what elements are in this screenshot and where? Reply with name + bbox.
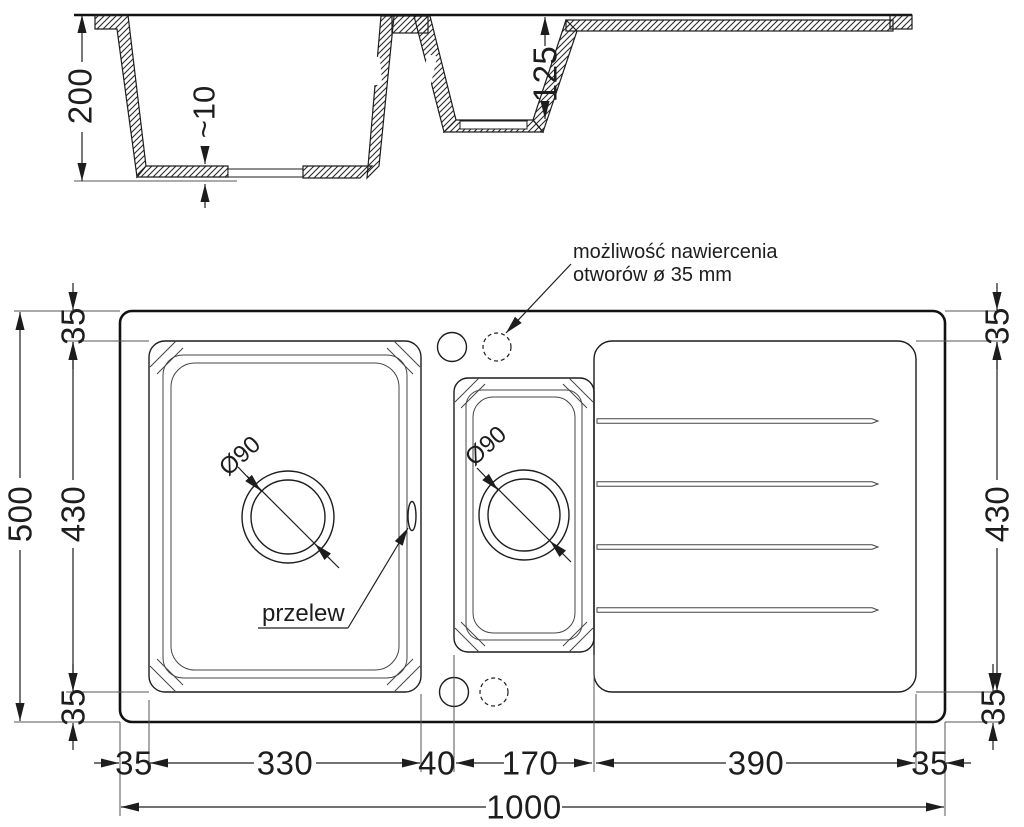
section-bowl1-right-wall (367, 16, 394, 178)
bowl2-drain-arrow-1 (477, 468, 498, 490)
section-bowl1-drain-recess (228, 169, 303, 177)
drill-note-line1: możliwość nawiercenia (573, 241, 778, 263)
overflow-label: przelew (262, 600, 345, 627)
section-bowl2-drain-recess (460, 121, 527, 129)
drainer-groove (597, 608, 878, 612)
dim-bowl-height-left: 430 (55, 486, 92, 543)
optional-hole-top (483, 333, 511, 361)
plan-view: Ø90 Ø90 (120, 311, 945, 722)
faucet-hole-top (438, 333, 467, 362)
dims-left: 500 430 35 35 (2, 283, 150, 750)
dims-right: 430 35 35 (916, 283, 1016, 750)
technical-drawing-sink: 200 ~10 125 (0, 0, 1024, 827)
section-drainer-end-rim (890, 15, 912, 29)
sink-outline (120, 311, 945, 722)
dim-overall-width: 1000 (486, 789, 561, 826)
section-bowl1-floor-right (303, 166, 372, 178)
dims-bottom: 35 330 40 170 390 35 1000 (94, 655, 971, 826)
dim-bottom-left-margin: 35 (115, 745, 153, 782)
drill-note-line2: otworów ø 35 mm (573, 264, 732, 286)
dim-bowl2-depth-label: 125 (527, 46, 564, 103)
dim-divider-width: 40 (418, 745, 456, 782)
dim-margin-bottom-left: 35 (55, 688, 92, 726)
drainer-groove (597, 482, 878, 486)
dim-margin-bottom-right: 35 (975, 688, 1012, 726)
drainer-groove (597, 419, 878, 423)
bowl2-drain-arrow-2 (550, 541, 571, 562)
section-bowl1-left-wall (95, 15, 146, 177)
bowl2-drain-diameter-label: Ø90 (460, 421, 512, 471)
sink-drawing-canvas: 200 ~10 125 (0, 0, 1024, 827)
overflow-note: przelew (258, 528, 408, 628)
drill-note: możliwość nawiercenia otworów ø 35 mm (506, 241, 778, 333)
dim-bowl-height-right: 430 (979, 486, 1016, 543)
dim-bottom-right-margin: 35 (911, 745, 949, 782)
bowl1-mid-edge (163, 355, 407, 678)
bowl2-drain-callout: Ø90 (460, 421, 571, 562)
dim-margin-top-left: 35 (55, 307, 92, 345)
section-bowl1-floor-left (137, 166, 228, 177)
section-bowl2-left-wall (414, 16, 456, 132)
dim-overall-height: 500 (2, 486, 39, 543)
section-drainer-profile (566, 20, 893, 31)
bowl1-drain-diameter-label: Ø90 (214, 431, 266, 481)
dim-margin-top-right: 35 (979, 307, 1016, 345)
dim-drainer-width: 390 (728, 745, 785, 782)
drill-note-leader-arrow (506, 264, 571, 333)
bowl1-drain-arrow-2 (315, 544, 339, 568)
section-view: 200 ~10 125 (62, 15, 913, 208)
bowl1-corner-facets (150, 341, 420, 692)
bowl1-outer-edge (149, 341, 421, 692)
drainer-outline (594, 341, 916, 692)
dim-bowl2-width: 170 (502, 745, 559, 782)
optional-hole-bottom (480, 678, 508, 706)
dim-depth-label: 200 (62, 68, 99, 125)
drainer-groove (597, 545, 878, 549)
drainer-grooves (597, 419, 878, 612)
overflow-slot (408, 502, 416, 531)
dim-bowl1-width: 330 (257, 745, 314, 782)
dim-floor-thickness-label: ~10 (187, 86, 222, 139)
